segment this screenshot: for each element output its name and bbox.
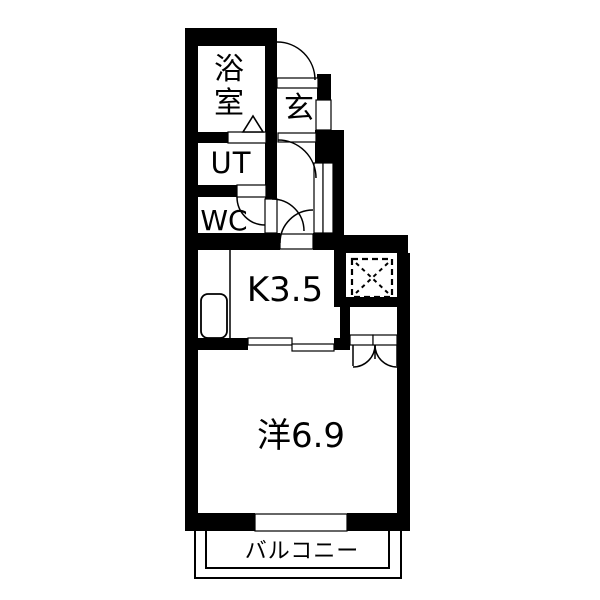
closet-door-panel <box>350 335 373 345</box>
wall <box>185 513 255 531</box>
wall <box>334 297 397 307</box>
room-label-toilet: WC <box>196 205 252 236</box>
wall <box>185 132 228 143</box>
kitchen-door-threshold <box>280 234 313 249</box>
utility-door-threshold <box>237 185 266 197</box>
entrance-step <box>277 78 318 88</box>
closet-door-panel <box>373 335 397 345</box>
wall <box>340 307 350 338</box>
wall <box>315 130 344 163</box>
wall <box>185 185 237 197</box>
window <box>255 514 347 531</box>
hall-storage <box>323 163 333 233</box>
wall <box>334 338 350 350</box>
room-label-western-room: 洋6.9 <box>249 417 353 455</box>
wall <box>333 163 344 235</box>
wall <box>317 74 331 102</box>
sliding-door-panel <box>292 344 334 351</box>
floor-plan: 浴室 玄 UT WC K3.5 洋6.9 バルコニー <box>0 0 600 600</box>
wall <box>397 253 410 531</box>
wall <box>265 46 277 199</box>
shoe-cabinet <box>316 100 331 130</box>
wall <box>340 235 408 253</box>
wall <box>185 28 277 46</box>
washing-machine-space-icon <box>352 259 392 297</box>
wc-door-threshold <box>265 199 277 233</box>
room-label-kitchen: K3.5 <box>233 271 337 309</box>
washing-machine-cross <box>356 263 388 293</box>
closet-door-arc <box>375 345 397 367</box>
room-label-utility: UT <box>203 147 259 179</box>
entrance-door-arc <box>277 42 315 80</box>
room-label-bathroom: 浴室 <box>211 53 247 120</box>
wall <box>185 28 198 531</box>
washing-machine-cross <box>356 263 388 293</box>
room-label-entrance: 玄 <box>282 92 316 126</box>
sliding-door-panel <box>248 338 292 345</box>
wall <box>347 513 410 531</box>
room-label-balcony: バルコニー <box>232 540 372 565</box>
wall <box>185 338 248 350</box>
hall-door-arc <box>278 140 316 178</box>
refrigerator-icon <box>201 294 227 338</box>
closet-door-arc <box>353 345 375 367</box>
bathroom-door-threshold <box>228 132 266 143</box>
